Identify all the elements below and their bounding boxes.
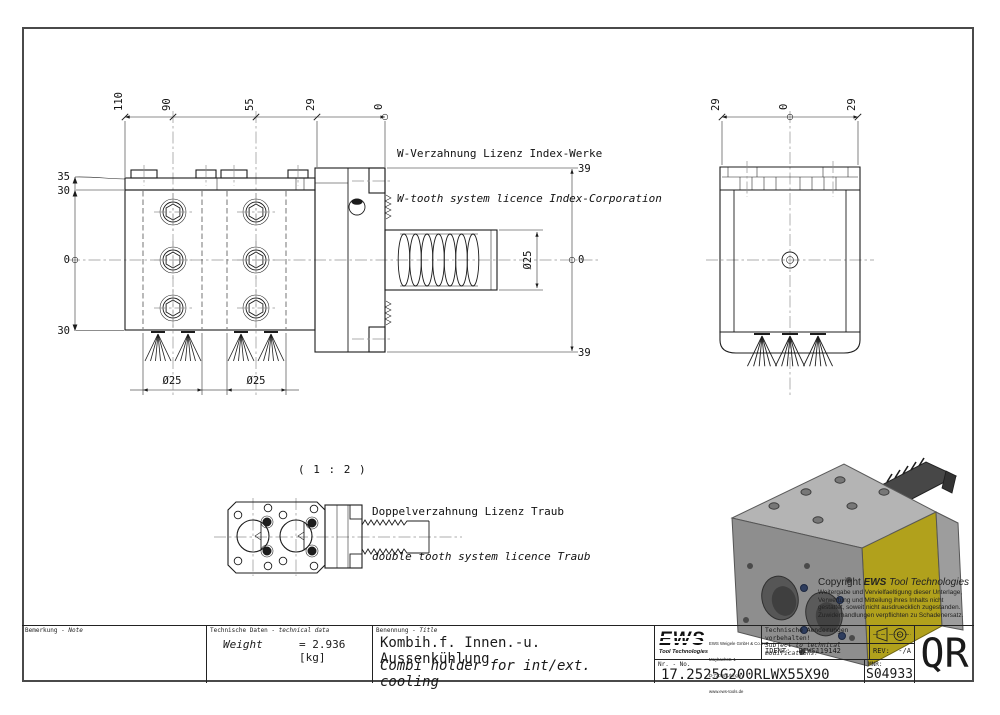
tech-label-de: Technische Daten - [210, 627, 279, 634]
dim-front-top-90: 90 [161, 98, 173, 111]
part-title-en: Combi holder for int/ext. cooling [380, 658, 654, 690]
dim-front-left-30a: 30 [57, 185, 70, 197]
dim-bore-dia-1: Ø25 [163, 375, 182, 387]
annotation-w-tooth: W-Verzahnung Lizenz Index-Werke W-tooth … [397, 116, 662, 236]
logo-stripe [659, 636, 705, 638]
logo-stripe [659, 641, 705, 643]
title-label: Benennung - Title [376, 627, 437, 634]
copyright-body-line: Zuwiderhandlungen verpflichten zu Schade… [818, 612, 980, 620]
company-line: www.ews-tools.de [709, 689, 768, 694]
side-view: 29 0 29 [706, 98, 874, 398]
drawing-sheet: 110 90 55 29 0 35 30 0 30 [0, 0, 1000, 715]
mnr-cell: MNR: S04933 [865, 660, 915, 683]
qr-label: QR [920, 631, 968, 677]
weight-label: Weight [223, 638, 263, 651]
dim-front-top-0: 0 [373, 104, 385, 110]
annotation-w-tooth-de: W-Verzahnung Lizenz Index-Werke [397, 146, 662, 161]
tech-data-label: Technische Daten - technical data [210, 627, 329, 634]
detail-scale-label: ( 1 : 2 ) [298, 462, 367, 477]
note-cell: Bemerkung - Note [22, 626, 207, 683]
copyright-prefix: Copyright [818, 577, 864, 588]
dim-shaft-dia: Ø25 [522, 251, 534, 270]
title-label-en: Title [419, 627, 437, 634]
annotation-double-tooth-en: double tooth system licence Traub [372, 549, 591, 564]
dim-side-29b: 29 [846, 98, 858, 111]
ident-value: DEWS119142 [799, 647, 841, 655]
ident-label: IDENT: [765, 647, 790, 655]
note-label: Bemerkung - Note [25, 627, 83, 634]
ews-logo-sub: Tool Technologies [659, 649, 708, 655]
company-line: EWS Weigele GmbH & Co. KG [709, 641, 768, 646]
note-label-de: Bemerkung - [25, 627, 68, 634]
dim-front-right-39b: 39 [578, 347, 591, 359]
logo-cell: EWS Tool Technologies EWS Weigele GmbH &… [655, 626, 762, 660]
dim-front-left-35: 35 [57, 171, 70, 183]
projection-cell [870, 626, 915, 644]
ews-logo: EWS [659, 629, 705, 651]
title-block: Bemerkung - Note Technische Daten - tech… [22, 625, 974, 682]
copyright-body-line: Weitergabe und Vervielfaeltigung dieser … [818, 589, 980, 597]
tech-data-cell: Technische Daten - technical data Weight… [207, 626, 373, 683]
copyright-suffix: Tool Technologies [886, 577, 969, 588]
projection-symbol-icon [871, 626, 914, 643]
dim-side-0: 0 [778, 104, 790, 110]
dim-bore-dia-2: Ø25 [247, 375, 266, 387]
copyright-line: Copyright EWS Tool Technologies [818, 577, 980, 588]
dim-front-right-0: 0 [578, 254, 584, 266]
dim-front-top-110: 110 [113, 92, 125, 111]
mnr-value: S04933 [866, 667, 913, 682]
dim-front-left-30b: 30 [57, 325, 70, 337]
weight-value: = 2.936 [kg] [299, 638, 372, 664]
title-cell: Benennung - Title Kombih.f. Innen.-u. Au… [373, 626, 655, 683]
ident-cell: IDENT: DEWS119142 [762, 644, 870, 660]
copyright-block: Copyright EWS Tool Technologies Weiterga… [818, 577, 980, 620]
dim-front-top-55: 55 [244, 98, 256, 111]
dim-front-left-0: 0 [64, 254, 70, 266]
copyright-brand: EWS [864, 577, 887, 588]
rev-value: -/A [898, 647, 911, 655]
copyright-body: Weitergabe und Vervielfaeltigung dieser … [818, 589, 980, 620]
copyright-body-line: gestattet, soweit nicht ausdruecklich zu… [818, 604, 980, 612]
rev-cell: REV: -/A [870, 644, 915, 660]
dim-side-29a: 29 [710, 98, 722, 111]
title-label-de: Benennung - [376, 627, 419, 634]
copyright-body-line: Verwertung und Mitteilung ihres Inhalts … [818, 597, 980, 605]
annotation-double-tooth: Doppelverzahnung Lizenz Traub double too… [372, 474, 591, 594]
changes-cell: Technische Aenderungen vorbehalten! Subj… [762, 626, 870, 644]
dim-front-top-29: 29 [305, 98, 317, 111]
part-number-cell: Nr. - No. 17.2525G200RLWX55X90 [655, 660, 865, 683]
qr-cell: QR [915, 626, 974, 683]
changes-de: Technische Aenderungen vorbehalten! [765, 627, 866, 642]
annotation-double-tooth-de: Doppelverzahnung Lizenz Traub [372, 504, 591, 519]
note-label-en: Note [68, 627, 82, 634]
part-number: 17.2525G200RLWX55X90 [661, 667, 830, 683]
rev-label: REV: [873, 647, 890, 655]
tech-label-en: technical data [279, 627, 330, 634]
annotation-w-tooth-en: W-tooth system licence Index-Corporation [397, 191, 662, 206]
